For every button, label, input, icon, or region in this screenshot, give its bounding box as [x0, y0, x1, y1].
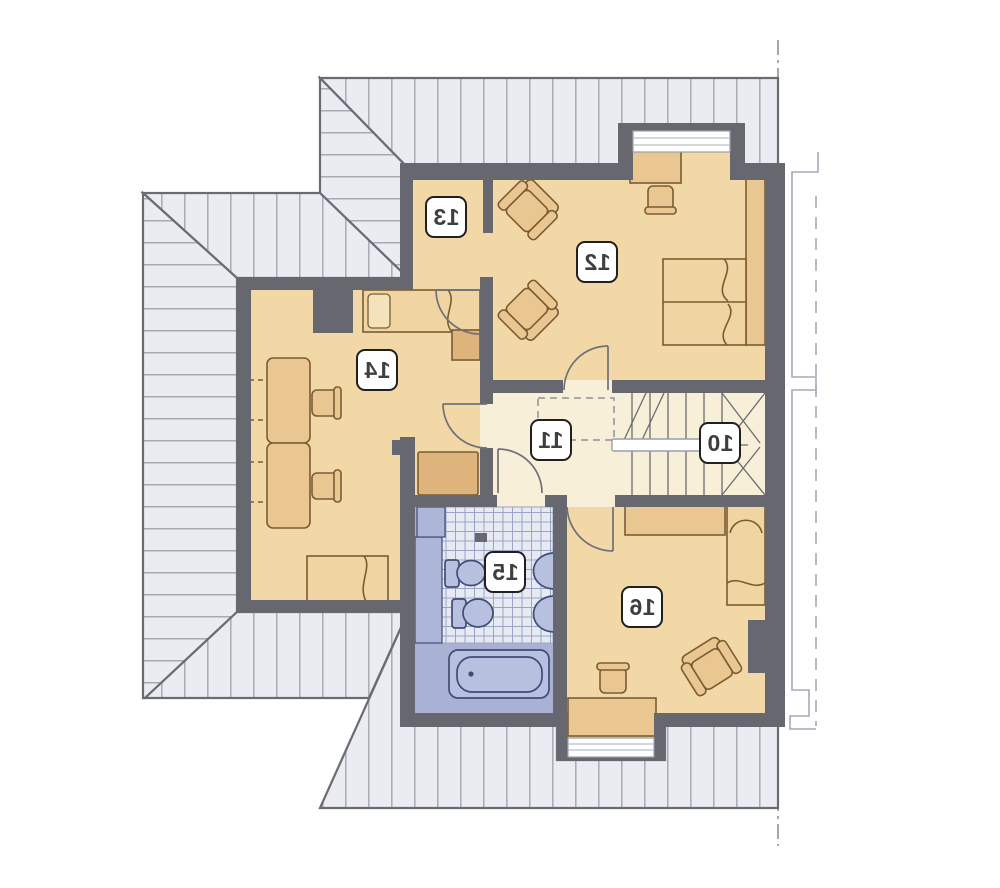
- table-2-room14: [267, 443, 310, 528]
- chair-back-room12: [645, 207, 676, 214]
- wall-east-pier: [748, 620, 785, 673]
- room-label-13: 13: [425, 196, 467, 238]
- wall-south-bath: [400, 713, 557, 727]
- wall-bath-west: [400, 437, 415, 727]
- wall-hall-south-right: [615, 495, 765, 507]
- bath-duct-block: [475, 533, 487, 542]
- room-label-11: 11: [530, 419, 572, 461]
- chair-2-back-room14: [334, 470, 341, 502]
- chimney-room14: [313, 287, 353, 333]
- wall-north-main: [408, 163, 618, 180]
- chimney-small: [392, 440, 407, 455]
- sofa-room14: [307, 556, 388, 603]
- chair-1-back-room14: [334, 387, 341, 419]
- toilet: [445, 560, 485, 587]
- wall-hall-north-left: [493, 380, 563, 393]
- wall-wing-west: [237, 277, 251, 612]
- floor-plan-canvas: 10 11 12 13 14 15 16: [0, 0, 1000, 888]
- wall-south-right: [665, 713, 785, 727]
- room-label-16: 16: [621, 586, 663, 628]
- pillow-room14: [368, 294, 390, 328]
- bay-right-jamb: [654, 713, 665, 760]
- bay-left-jamb: [557, 713, 568, 760]
- stair-walkline: [612, 439, 708, 451]
- wall-wing-south: [237, 600, 413, 612]
- wardrobe-room16: [625, 505, 725, 535]
- bathtub: [449, 650, 549, 698]
- wall-stub-room13: [483, 163, 493, 233]
- chair-back-room16: [597, 663, 629, 670]
- wardrobe-nook-room14: [418, 452, 478, 495]
- shelf-strip-room12: [746, 178, 765, 345]
- dormer-head: [618, 123, 745, 131]
- adjacent-unit-outline: [790, 152, 818, 729]
- window-room12-dormer: [633, 131, 730, 152]
- bathroom-cabinet: [417, 507, 445, 537]
- table-1-room14: [267, 358, 310, 443]
- dormer-left-jamb: [618, 123, 633, 180]
- wall-room14-east-upper: [480, 277, 493, 404]
- wall-bath-room16: [553, 507, 567, 713]
- roof-wing-left: [143, 193, 237, 698]
- bathroom-counter: [415, 537, 442, 643]
- room-label-10: 10: [699, 422, 741, 464]
- room-label-12: 12: [576, 241, 618, 283]
- wall-west-upper: [400, 163, 413, 290]
- desk-room16: [568, 698, 656, 736]
- wall-hall-south-mid: [545, 495, 567, 507]
- room-label-15: 15: [484, 551, 526, 593]
- dormer-right-jamb: [730, 123, 745, 180]
- wall-hall-north-right: [612, 380, 765, 393]
- window-room16-bay: [568, 738, 654, 757]
- floor-plan-drawing: [0, 0, 1000, 888]
- bidet: [452, 599, 493, 628]
- desk-room12: [630, 150, 681, 183]
- room-label-14: 14: [356, 349, 398, 391]
- chair-room16: [600, 668, 626, 693]
- wall-hall-south-left: [415, 495, 497, 507]
